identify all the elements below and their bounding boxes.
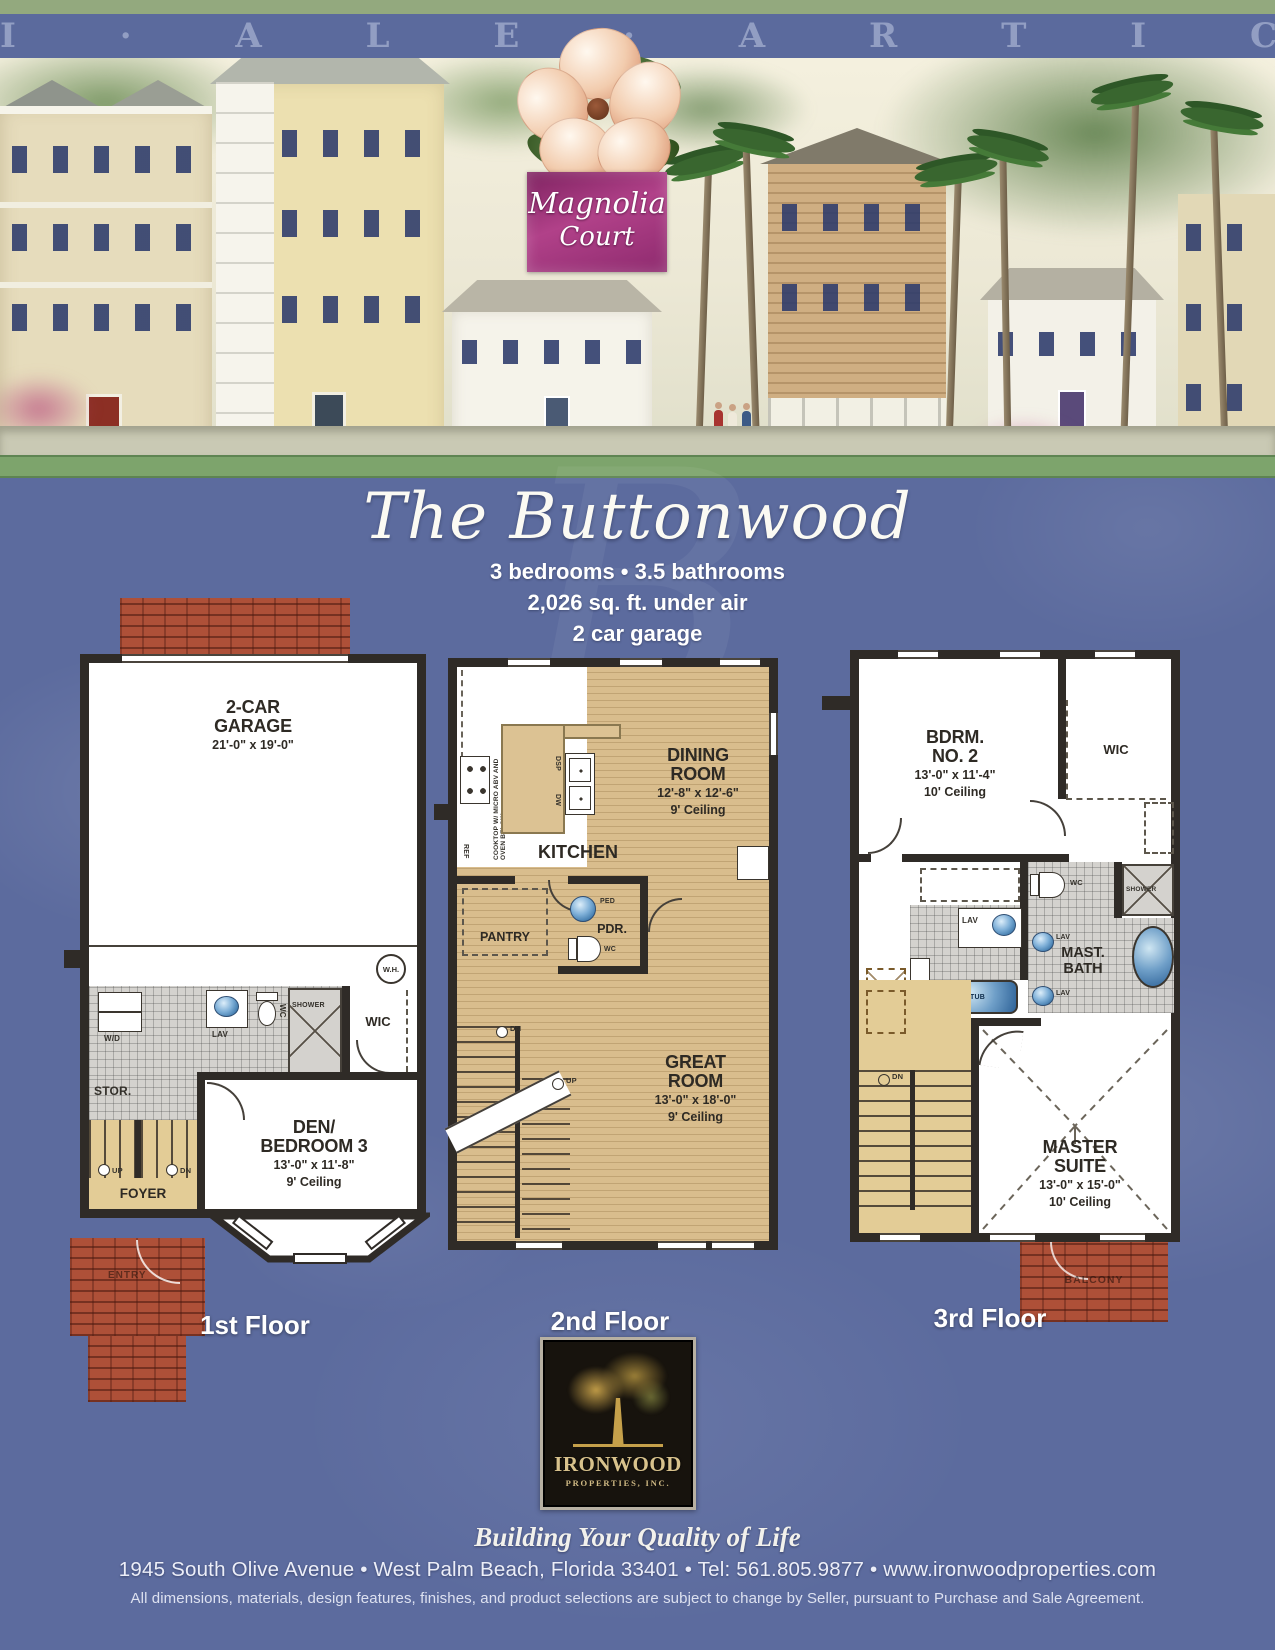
floorplan-first-floor: 2-CAR GARAGE 21'-0" x 19'-0" W.H. W/D LA… [78,598,430,1408]
room-ceiling: 9' Ceiling [218,1175,410,1191]
illustration-house [216,82,444,455]
window-row [462,340,642,364]
kitchen-island [501,724,565,834]
community-name-line1: Magnolia [527,186,667,220]
room-dims: 12'-8" x 12'-6" [628,786,768,802]
wic-dashed-wall [406,990,408,1072]
wall [342,986,350,1076]
floorplan-second-floor: COOKTOP W/ MICRO ABV AND OVEN BELOW DSP … [448,658,778,1258]
palm-trunk [945,176,962,455]
community-name-plate: Magnolia Court [527,172,667,272]
stair-marker-dn [496,1026,508,1038]
toilet-tank [256,992,278,1001]
stair-up-label: UP [566,1076,577,1085]
room-name: ROOM [623,1072,768,1091]
wall [971,1018,979,1233]
wall [80,654,89,1218]
powder-room-label: PDR. [586,922,638,936]
window-row [12,146,200,173]
washer-dryer-label: W/D [104,1034,120,1043]
wall-stub [434,804,448,820]
chase-closet [737,846,769,880]
wall [1058,659,1066,799]
toilet-label: WC [278,1004,287,1018]
window-row [1186,304,1268,331]
sink [1032,986,1054,1006]
room-dims: 13'-0" x 11'-8" [218,1158,410,1174]
sink-label: LAV [962,916,978,925]
wic-label: WIC [1076,742,1156,757]
wall [448,658,457,1250]
room-dims: 13'-0" x 18'-0" [623,1093,768,1109]
cornice [0,106,212,114]
stair-dn-label: DN [180,1166,191,1175]
driveway-apron [120,598,350,660]
room-name: DINING [628,746,768,765]
entry-label: ENTRY [108,1270,147,1281]
refrigerator-label: REF [462,844,469,859]
tub-label: TUB [970,994,985,1001]
wall [859,854,871,862]
window [1000,650,1040,659]
washer-dryer [98,992,142,1032]
stairs-run [859,1070,971,1210]
window-row [12,224,200,251]
room-name: BEDROOM 3 [218,1137,410,1156]
attic-access-frame [866,990,906,1034]
room-label-great: GREAT ROOM 13'-0" x 18'-0" 9' Ceiling [623,1053,768,1126]
room-ceiling: 10' Ceiling [875,785,1035,801]
window [990,1233,1035,1242]
wall [558,966,648,974]
room-name: ROOM [628,765,768,784]
room-ceiling: 9' Ceiling [628,803,768,819]
spa-tub [1132,926,1174,988]
wall [197,1072,205,1218]
sink [992,914,1016,936]
wall [850,650,859,1242]
kitchen-label: KITCHEN [508,842,648,863]
linen-closet [920,868,1020,902]
floor-trim [0,282,212,288]
magnolia-court-logo: Magnolia Court [515,26,679,272]
dishwasher-label: DW [554,794,561,806]
room-label-bdrm2: BDRM. NO. 2 13'-0" x 11'-4" 10' Ceiling [875,728,1035,801]
master-wic-dashed [1144,802,1174,854]
sink [214,996,239,1017]
sink-basin [569,758,591,782]
toilet-bowl [258,1001,276,1026]
roof [442,280,662,312]
toilet-bowl [1039,872,1065,898]
sink [1032,932,1054,952]
wall [971,1018,1041,1026]
room-name: SUITE [1000,1157,1160,1176]
wall [197,1072,426,1080]
pedestal-sink [570,896,596,922]
water-heater-label: W.H. [383,965,399,974]
window-row [1186,224,1268,251]
entry-steps [88,1336,186,1402]
room-name: BDRM. [875,728,1035,747]
balcony-label: BALCONY [1020,1274,1168,1286]
wall [417,654,426,1218]
window [516,1241,562,1250]
window [769,713,778,755]
magnolia-stamen [587,98,609,120]
wall-stub [64,950,80,968]
window-row [282,296,434,323]
bay-window [208,1212,430,1264]
legal-disclaimer: All dimensions, materials, design featur… [0,1590,1275,1607]
room-dims: 13'-0" x 15'-0" [1000,1178,1160,1194]
pedestal-label: PED [600,898,615,905]
room-label-dining: DINING ROOM 12'-8" x 12'-6" 9' Ceiling [628,746,768,819]
brochure-page: I · A L E · A R T I C O [0,0,1275,1650]
upper-cabinet-dashed [461,670,463,758]
room-name: NO. 2 [875,747,1035,766]
room-name: GARAGE [138,717,368,736]
floorplan-third-floor: BDRM. NO. 2 13'-0" x 11'-4" 10' Ceiling … [850,650,1180,1250]
window [620,658,662,667]
pantry-label: PANTRY [462,930,548,944]
spec-bed-bath: 3 bedrooms • 3.5 bathrooms [0,556,1275,587]
roof [210,58,450,84]
plan-title: The Buttonwood [0,480,1275,554]
storage-floor [89,1076,197,1120]
window [880,1233,920,1242]
kitchen-counter-arm [563,724,621,739]
storage-label: STOR. [94,1084,131,1098]
room-ceiling: 10' Ceiling [1000,1195,1160,1211]
stair-dn-label: DN [510,1024,521,1033]
window [1095,650,1135,659]
illustration-house [768,162,946,455]
shower-label: SHOWER [1126,886,1156,893]
garage-door-opening [122,654,348,663]
room-label-garage: 2-CAR GARAGE 21'-0" x 19'-0" [138,698,368,753]
room-label-den: DEN/ BEDROOM 3 13'-0" x 11'-8" 9' Ceilin… [218,1118,410,1191]
master-bath-label: MAST. BATH [1046,946,1120,978]
toilet-tank [568,938,577,960]
sink-label: LAV [1056,934,1070,941]
first-floor-label: 1st Floor [150,1310,360,1341]
company-tagline: Building Your Quality of Life [0,1522,1275,1553]
stair-marker-dn [166,1164,178,1176]
window [898,650,938,659]
community-name-line2: Court [527,222,667,252]
water-heater: W.H. [376,954,406,984]
sink-label: LAV [1056,990,1070,997]
room-name: MASTER [1000,1138,1160,1157]
sink-basin [569,786,591,810]
stair-up-label: UP [112,1166,123,1175]
wic-label: WIC [350,1014,406,1029]
floor-trim [0,202,212,208]
stair-marker-dn [878,1074,890,1086]
wall [1114,862,1122,922]
foyer-label: FOYER [89,1186,197,1201]
disposal-label: DSP [554,756,561,771]
room-ceiling: 9' Ceiling [623,1110,768,1126]
stair-marker-up [552,1078,564,1090]
shower-label: SHOWER [292,1002,325,1009]
room-name: MAST. [1046,946,1120,962]
stair-rail [515,1026,520,1238]
stair-marker-up [98,1164,110,1176]
window [712,1241,754,1250]
window-row [282,130,434,157]
logo-subtext: PROPERTIES, INC. [543,1478,693,1488]
wall [640,876,648,974]
wall-stub [822,696,850,710]
ground-line [573,1444,663,1447]
room-dims: 21'-0" x 19'-0" [138,738,368,754]
shower [288,988,342,1074]
window [720,658,760,667]
stair-dn-label: DN [892,1072,903,1081]
top-green-strip [0,0,1275,14]
window [508,658,550,667]
toilet-bowl [577,936,601,962]
illustration-house [0,106,212,455]
window [658,1241,706,1250]
second-floor-label: 2nd Floor [505,1306,715,1337]
window-row [282,210,434,237]
ironwood-logo: IRONWOOD PROPERTIES, INC. [540,1337,696,1510]
room-dims: 13'-0" x 11'-4" [875,768,1035,784]
room-name: GREAT [623,1053,768,1072]
toilet-label: WC [1070,878,1083,887]
wall [457,876,515,884]
company-address-line: 1945 South Olive Avenue • West Palm Beac… [0,1558,1275,1582]
garage-front-line [89,945,417,947]
pantry-shelving [462,888,548,956]
window-row [12,304,200,331]
room-label-master: MASTER SUITE 13'-0" x 15'-0" 10' Ceiling [1000,1138,1160,1211]
third-floor-label: 3rd Floor [885,1303,1095,1334]
toilet-tank [1030,874,1039,896]
cooktop [460,756,490,804]
window-row [782,284,932,311]
stair-rail [910,1070,915,1210]
wall [902,854,1069,862]
porch-column [216,82,274,455]
window-row [782,204,932,231]
logo-wordmark: IRONWOOD [543,1452,693,1477]
window [1100,1233,1145,1242]
sink-label: LAV [212,1030,228,1039]
room-name: BATH [1046,962,1120,978]
room-name: DEN/ [218,1118,410,1137]
toilet-label: WC [604,946,616,953]
wall [568,876,648,884]
room-name: 2-CAR [138,698,368,717]
